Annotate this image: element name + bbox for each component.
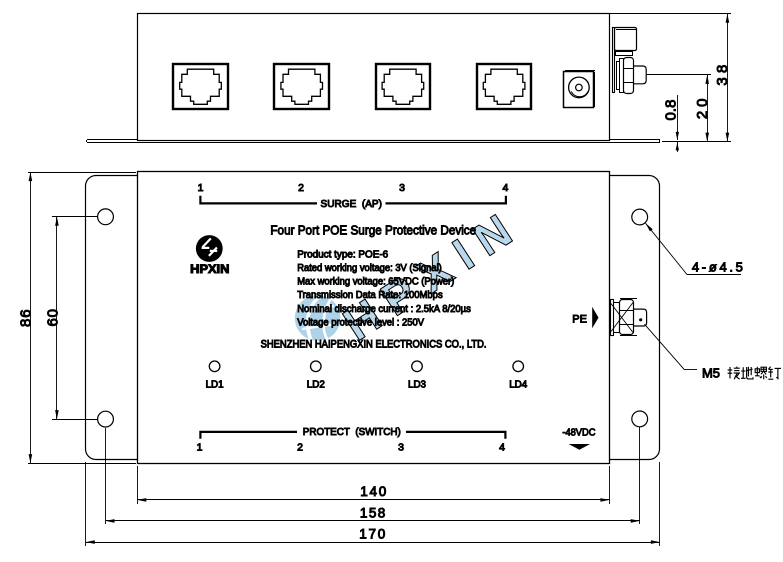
svg-text:PE: PE: [572, 313, 587, 325]
svg-text:HPXIN: HPXIN: [190, 264, 229, 276]
svg-text:LD1: LD1: [206, 380, 224, 391]
svg-text:Voltage protective level : 250: Voltage protective level : 250V: [297, 317, 424, 328]
svg-text:60: 60: [45, 309, 62, 327]
svg-text:SURGE (AP): SURGE (AP): [321, 198, 383, 210]
svg-text:-48VDC: -48VDC: [562, 428, 596, 439]
svg-text:158: 158: [360, 505, 385, 520]
svg-text:1: 1: [198, 182, 204, 194]
svg-text:Four Port POE Surge Protective: Four Port POE Surge Protective Device: [270, 222, 476, 237]
svg-text:0.8: 0.8: [663, 100, 680, 121]
svg-text:3: 3: [398, 442, 404, 454]
svg-text:4: 4: [499, 442, 505, 454]
svg-text:140: 140: [360, 484, 386, 499]
svg-text:170: 170: [359, 527, 385, 542]
svg-text:Max working voltage: 65VDC (Po: Max working voltage: 65VDC (Power): [297, 277, 454, 288]
svg-text:M5: M5: [702, 366, 720, 381]
svg-text:LD3: LD3: [408, 380, 427, 391]
svg-text:Rated working voltage: 3V (Sig: Rated working voltage: 3V (Signal): [297, 263, 442, 274]
svg-text:PROTECT (SWITCH): PROTECT (SWITCH): [303, 426, 401, 438]
svg-text:86: 86: [18, 309, 35, 327]
svg-text:SHENZHEN HAIPENGXIN ELECTRONIC: SHENZHEN HAIPENGXIN ELECTRONICS CO., LTD…: [261, 339, 487, 351]
svg-text:Transmission Data Rate: 100Mbp: Transmission Data Rate: 100Mbps: [297, 290, 443, 301]
svg-text:LD2: LD2: [307, 380, 325, 391]
svg-text:4: 4: [502, 182, 508, 194]
svg-text:2: 2: [297, 442, 303, 454]
svg-text:Nominal discharge current : 2.: Nominal discharge current : 2.5kA 8/20µs: [297, 304, 471, 315]
svg-text:LD4: LD4: [509, 380, 528, 391]
svg-text:Product type: POE-6: Product type: POE-6: [297, 249, 388, 260]
svg-text:3: 3: [399, 182, 405, 194]
svg-text:1: 1: [197, 442, 203, 454]
svg-text:2: 2: [298, 182, 304, 194]
